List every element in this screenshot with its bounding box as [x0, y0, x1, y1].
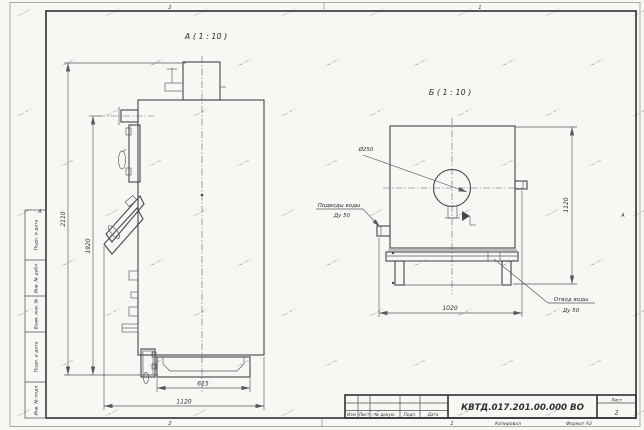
stamp-field-3: Взам. инв. №: [34, 298, 40, 329]
watermark-mark: ·~·~·: [280, 6, 297, 20]
watermark-mark: ·~·~·: [368, 106, 385, 120]
inlet-stub: [377, 226, 390, 236]
stamp-field-1: Подп. и дата: [34, 219, 40, 250]
upper-door: [119, 125, 141, 182]
col-list: Лист: [358, 412, 370, 417]
stamp-field-2: Инв. № дубл.: [34, 263, 40, 294]
watermark-mark: ·~·~·: [192, 106, 209, 120]
watermark-mark: ·~·~·: [456, 106, 473, 120]
watermark-mark: ·~·~·: [324, 156, 341, 170]
watermark-mark: ·~·~·: [324, 256, 341, 270]
watermark-mark: ·~·~·: [588, 156, 605, 170]
watermark-mark: ·~·~·: [412, 156, 429, 170]
watermark-mark: ·~·~·: [368, 206, 385, 220]
watermark-mark: ·~·~·: [544, 306, 561, 320]
view-b-label: Б ( 1 : 10 ): [429, 88, 471, 97]
watermark-mark: ·~·~·: [236, 256, 253, 270]
watermark-mark: ·~·~·: [280, 106, 297, 120]
watermark-mark: ·~·~·: [500, 156, 517, 170]
watermark-mark: ·~·~·: [632, 6, 644, 20]
watermark-mark: ·~·~·: [148, 156, 165, 170]
watermark-mark: ·~·~·: [236, 156, 253, 170]
dim-1020: 1020: [442, 305, 457, 312]
dim-1120: 1120: [176, 399, 191, 406]
watermark-mark: ·~·~·: [412, 356, 429, 370]
zone-bottom-left: 2: [168, 421, 171, 427]
dim-2110: 2110: [60, 211, 67, 226]
watermark-mark: ·~·~·: [544, 206, 561, 220]
dim-615: 615: [197, 381, 209, 388]
boiler-body: [138, 100, 264, 355]
watermark-mark: ·~·~·: [104, 306, 121, 320]
watermark-mark: ·~·~·: [500, 56, 517, 70]
watermark-mark: ·~·~·: [104, 106, 121, 120]
watermark-mark: ·~·~·: [324, 56, 341, 70]
watermark-mark: ·~·~·: [588, 256, 605, 270]
callout-outlet: Отвод воды Ду 50: [494, 259, 595, 314]
watermark-mark: ·~·~·: [544, 106, 561, 120]
outlet-label: Отвод воды: [554, 297, 589, 303]
ash-door-handle: [144, 373, 149, 384]
watermark-layer: ·~·~··~·~··~·~··~·~··~·~··~·~··~·~··~·~·…: [16, 6, 644, 420]
dim-1920: 1920: [85, 238, 92, 253]
sheet-number: 2: [615, 410, 619, 417]
watermark-mark: ·~·~·: [16, 6, 33, 20]
col-izm: Изм: [347, 412, 356, 417]
dimensions-view-b: 1020 1120: [379, 127, 577, 317]
footer-format: Формат А3: [566, 421, 592, 427]
view-a: А ( 1 : 10 ): [60, 32, 264, 410]
safety-valve: [165, 68, 226, 91]
watermark-mark: ·~·~·: [412, 56, 429, 70]
sheet-label: Лист: [610, 398, 622, 403]
stamp-field-4: Подп. и дата: [34, 341, 40, 372]
col-data: Дата: [427, 412, 439, 417]
watermark-mark: ·~·~·: [192, 306, 209, 320]
lower-collector: [386, 250, 518, 285]
outlet-size: Ду 50: [562, 308, 580, 314]
watermark-mark: ·~·~·: [588, 56, 605, 70]
watermark-mark: ·~·~·: [632, 206, 644, 220]
view-b: Б ( 1 : 10 ): [316, 88, 595, 317]
watermark-mark: ·~·~·: [632, 306, 644, 320]
door-handle: [119, 151, 126, 169]
col-doc: № докум.: [374, 412, 396, 417]
watermark-mark: ·~·~·: [500, 356, 517, 370]
watermark-mark: ·~·~·: [104, 206, 121, 220]
inlet-size: Ду 50: [333, 213, 351, 219]
watermark-mark: ·~·~·: [280, 206, 297, 220]
watermark-mark: ·~·~·: [192, 206, 209, 220]
watermark-mark: ·~·~·: [544, 6, 561, 20]
watermark-mark: ·~·~·: [148, 256, 165, 270]
outlet-flange: [488, 252, 500, 261]
footer-copy: Копировал: [495, 421, 521, 427]
watermark-mark: ·~·~·: [280, 306, 297, 320]
inlet-label: Подводы воды: [318, 203, 361, 209]
watermark-mark: ·~·~·: [16, 106, 33, 120]
drawing-sheet: ·~·~··~·~··~·~··~·~··~·~··~·~··~·~··~·~·…: [0, 0, 644, 430]
title-block: Изм Лист № докум. Подп. Дата КВТД.017.20…: [345, 395, 636, 427]
watermark-mark: ·~·~·: [236, 56, 253, 70]
base-ash-box: [157, 357, 250, 377]
zone-bottom-right: 1: [450, 421, 453, 427]
dim-1120b: 1120: [563, 197, 570, 212]
zone-top-left: 2: [168, 5, 171, 11]
view-a-label: А ( 1 : 10 ): [184, 32, 227, 41]
doc-number: КВТД.017.201.00.000 ВО: [461, 403, 584, 413]
chimney: [183, 62, 220, 100]
zone-right: А: [620, 213, 625, 219]
watermark-mark: ·~·~·: [324, 356, 341, 370]
watermark-mark: ·~·~·: [632, 106, 644, 120]
watermark-mark: ·~·~·: [456, 6, 473, 20]
drawing-canvas: ·~·~··~·~··~·~··~·~··~·~··~·~··~·~··~·~·…: [0, 0, 644, 430]
watermark-mark: ·~·~·: [16, 306, 33, 320]
side-fittings: [122, 271, 138, 332]
callout-diameter: Ø250: [358, 146, 467, 192]
dia-250-label: Ø250: [358, 146, 374, 153]
watermark-mark: ·~·~·: [192, 6, 209, 20]
stamp-field-5: Инв. № подл.: [34, 384, 40, 415]
watermark-mark: ·~·~·: [588, 356, 605, 370]
zone-top-right: 1: [478, 5, 481, 11]
watermark-mark: ·~·~·: [104, 6, 121, 20]
watermark-mark: ·~·~·: [368, 6, 385, 20]
col-podp: Подп.: [404, 412, 417, 417]
watermark-mark: ·~·~·: [412, 256, 429, 270]
watermark-mark: ·~·~·: [16, 206, 33, 220]
